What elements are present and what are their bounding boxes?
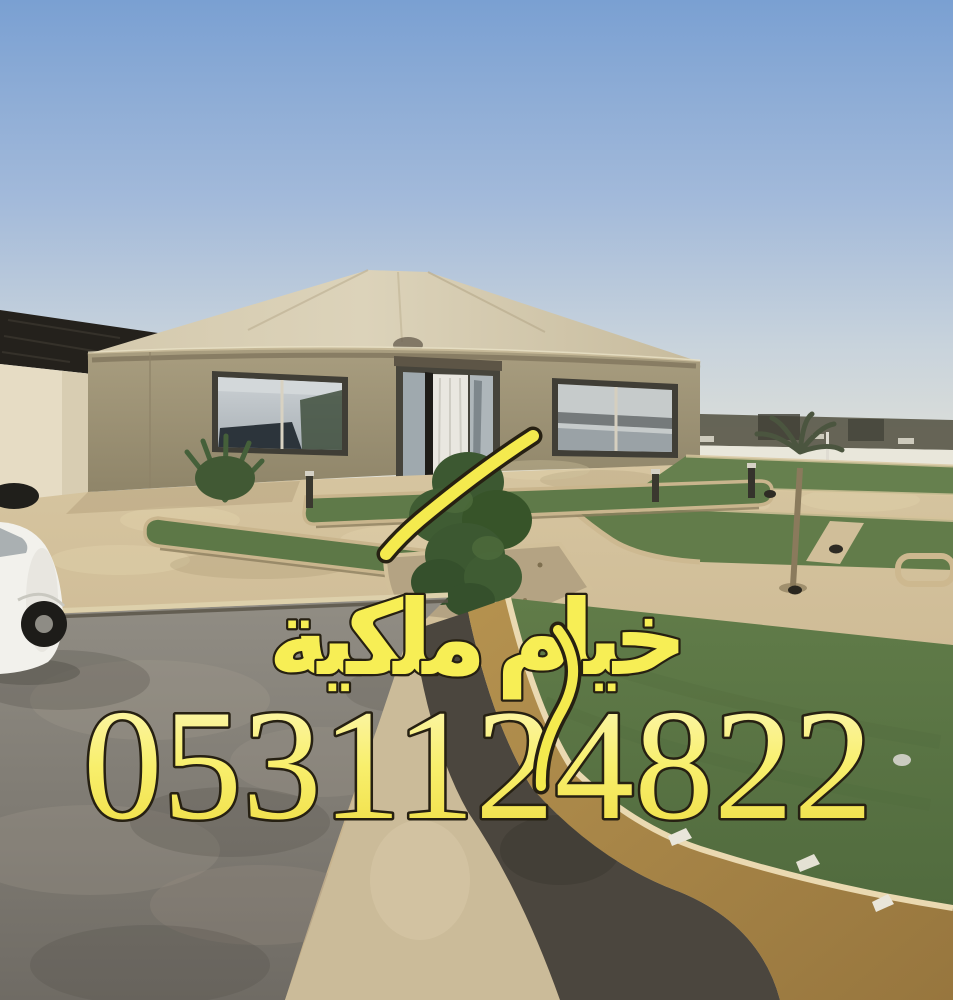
bird <box>788 586 802 595</box>
bollard-light <box>747 463 756 498</box>
window-right <box>552 378 678 458</box>
stone <box>893 754 911 766</box>
bird <box>829 545 843 554</box>
photo-scene: خيام ملكية 0531124822 <box>0 0 953 1000</box>
phone-number: 0531124822 <box>83 678 873 853</box>
bird <box>764 490 776 498</box>
window-reflection-palm <box>300 390 342 450</box>
bollard-light <box>651 469 660 502</box>
photo-ad: خيام ملكية 0531124822 <box>0 0 953 1000</box>
bollard-light <box>305 471 314 508</box>
window-left <box>212 371 348 456</box>
